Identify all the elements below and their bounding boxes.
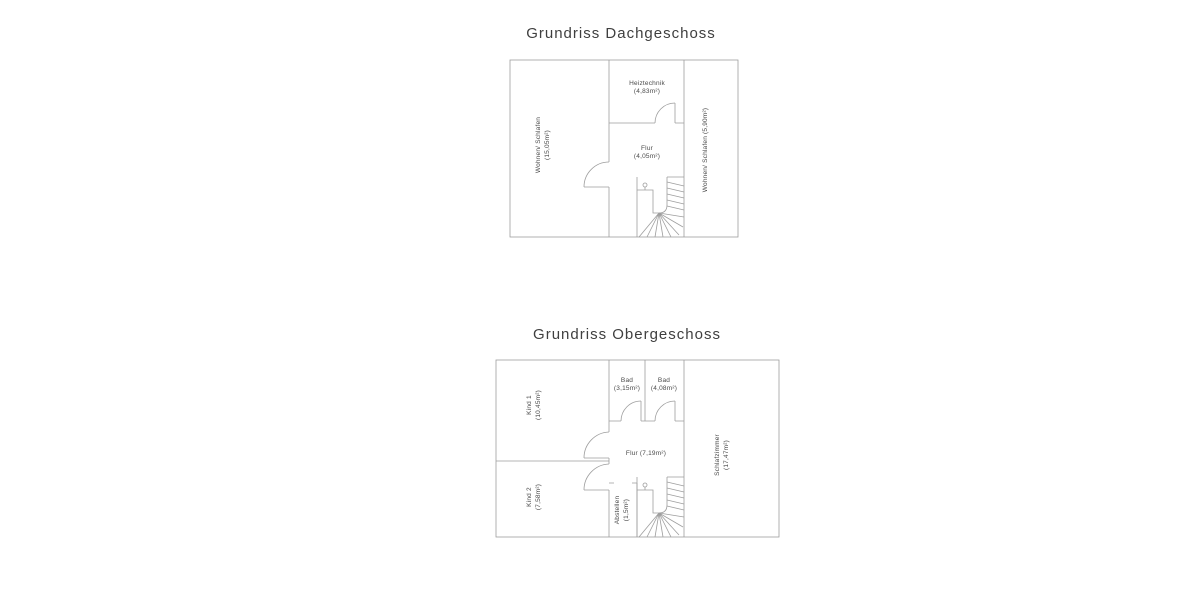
label-schlafzimmer-name: Schlafzimmer (714, 433, 721, 475)
door-kind1 (584, 432, 609, 458)
label-kind2-area: (7,58m²) (535, 484, 542, 510)
label-schlafzimmer-area: (17,47m²) (723, 440, 730, 470)
label-kind1-name: Kind 1 (526, 395, 533, 415)
label-flur-name: Flur (641, 145, 654, 152)
floorplan-sheet: Grundriss Dachgeschoss (0, 0, 1200, 600)
label-bad1-name: Bad (621, 377, 633, 384)
label-room-wohnen-links-area: (15,05m²) (544, 130, 551, 160)
label-kind2-name: Kind 2 (526, 487, 533, 507)
door-swing-arc (584, 432, 609, 458)
title-dachgeschoss: Grundriss Dachgeschoss (526, 25, 716, 42)
label-bad2-area: (4,08m²) (651, 385, 677, 392)
label-abstellen-name: Abstellen (614, 496, 621, 525)
door-swing-arc (584, 162, 609, 187)
door-heiztechnik (655, 103, 675, 123)
label-flur: Flur (7,19m²) (626, 450, 666, 457)
door-kind2 (584, 464, 609, 490)
door-bad1 (621, 401, 641, 421)
floorplan-dachgeschoss: Wohnen/ Schlafen (15,05m²) Heiztechnik (… (510, 60, 738, 237)
label-abstellen-area: (1,5m²) (623, 499, 630, 521)
label-heiztechnik-area: (4,83m²) (634, 88, 660, 95)
label-kind1-area: (10,45m²) (535, 390, 542, 420)
label-bad2-name: Bad (658, 377, 670, 384)
door-bad2 (655, 401, 675, 421)
label-room-wohnen-rechts: Wohnen/ Schlafen (5,90m²) (702, 108, 709, 192)
title-obergeschoss: Grundriss Obergeschoss (533, 326, 721, 343)
floorplan-obergeschoss: Kind 1 (10,45m²) Kind 2 (7,58m²) Bad (3,… (496, 360, 779, 537)
label-bad1-area: (3,15m²) (614, 385, 640, 392)
door-swing-arc (655, 401, 675, 421)
door-swing-arc (655, 103, 675, 123)
door-wohnen-links (584, 162, 609, 187)
staircase-obergeschoss (637, 477, 684, 537)
label-heiztechnik-name: Heiztechnik (629, 80, 665, 87)
staircase-dachgeschoss (637, 177, 684, 237)
label-flur-area: (4,05m²) (634, 153, 660, 160)
door-swing-arc (621, 401, 641, 421)
door-swing-arc (584, 464, 609, 490)
label-room-wohnen-links-name: Wohnen/ Schlafen (535, 117, 542, 173)
